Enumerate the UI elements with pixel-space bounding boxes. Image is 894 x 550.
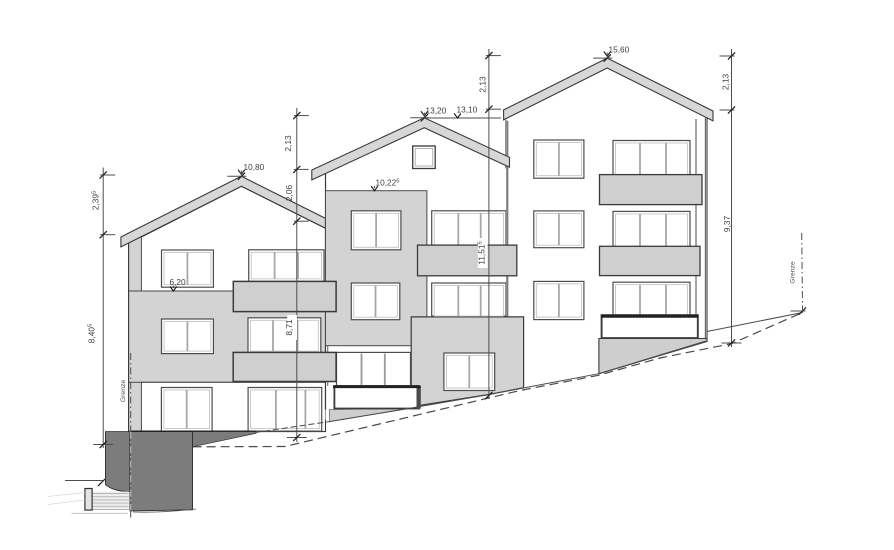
- svg-text:Grenze: Grenze: [120, 380, 127, 403]
- svg-text:6,20: 6,20: [170, 277, 187, 287]
- svg-text:2,13: 2,13: [283, 135, 293, 152]
- svg-text:13,10: 13,10: [457, 105, 478, 115]
- svg-text:Grenze: Grenze: [790, 261, 797, 284]
- svg-text:10,225: 10,225: [376, 178, 400, 188]
- svg-text:2,06: 2,06: [284, 185, 294, 202]
- svg-text:2,13: 2,13: [478, 76, 488, 93]
- svg-text:10,80: 10,80: [244, 162, 265, 172]
- svg-text:15,60: 15,60: [609, 45, 630, 55]
- svg-text:9,37: 9,37: [722, 216, 732, 233]
- svg-text:8,71: 8,71: [284, 319, 294, 336]
- svg-text:11,515: 11,515: [477, 241, 487, 264]
- svg-text:2,13: 2,13: [721, 74, 731, 91]
- svg-text:13,20: 13,20: [426, 106, 447, 116]
